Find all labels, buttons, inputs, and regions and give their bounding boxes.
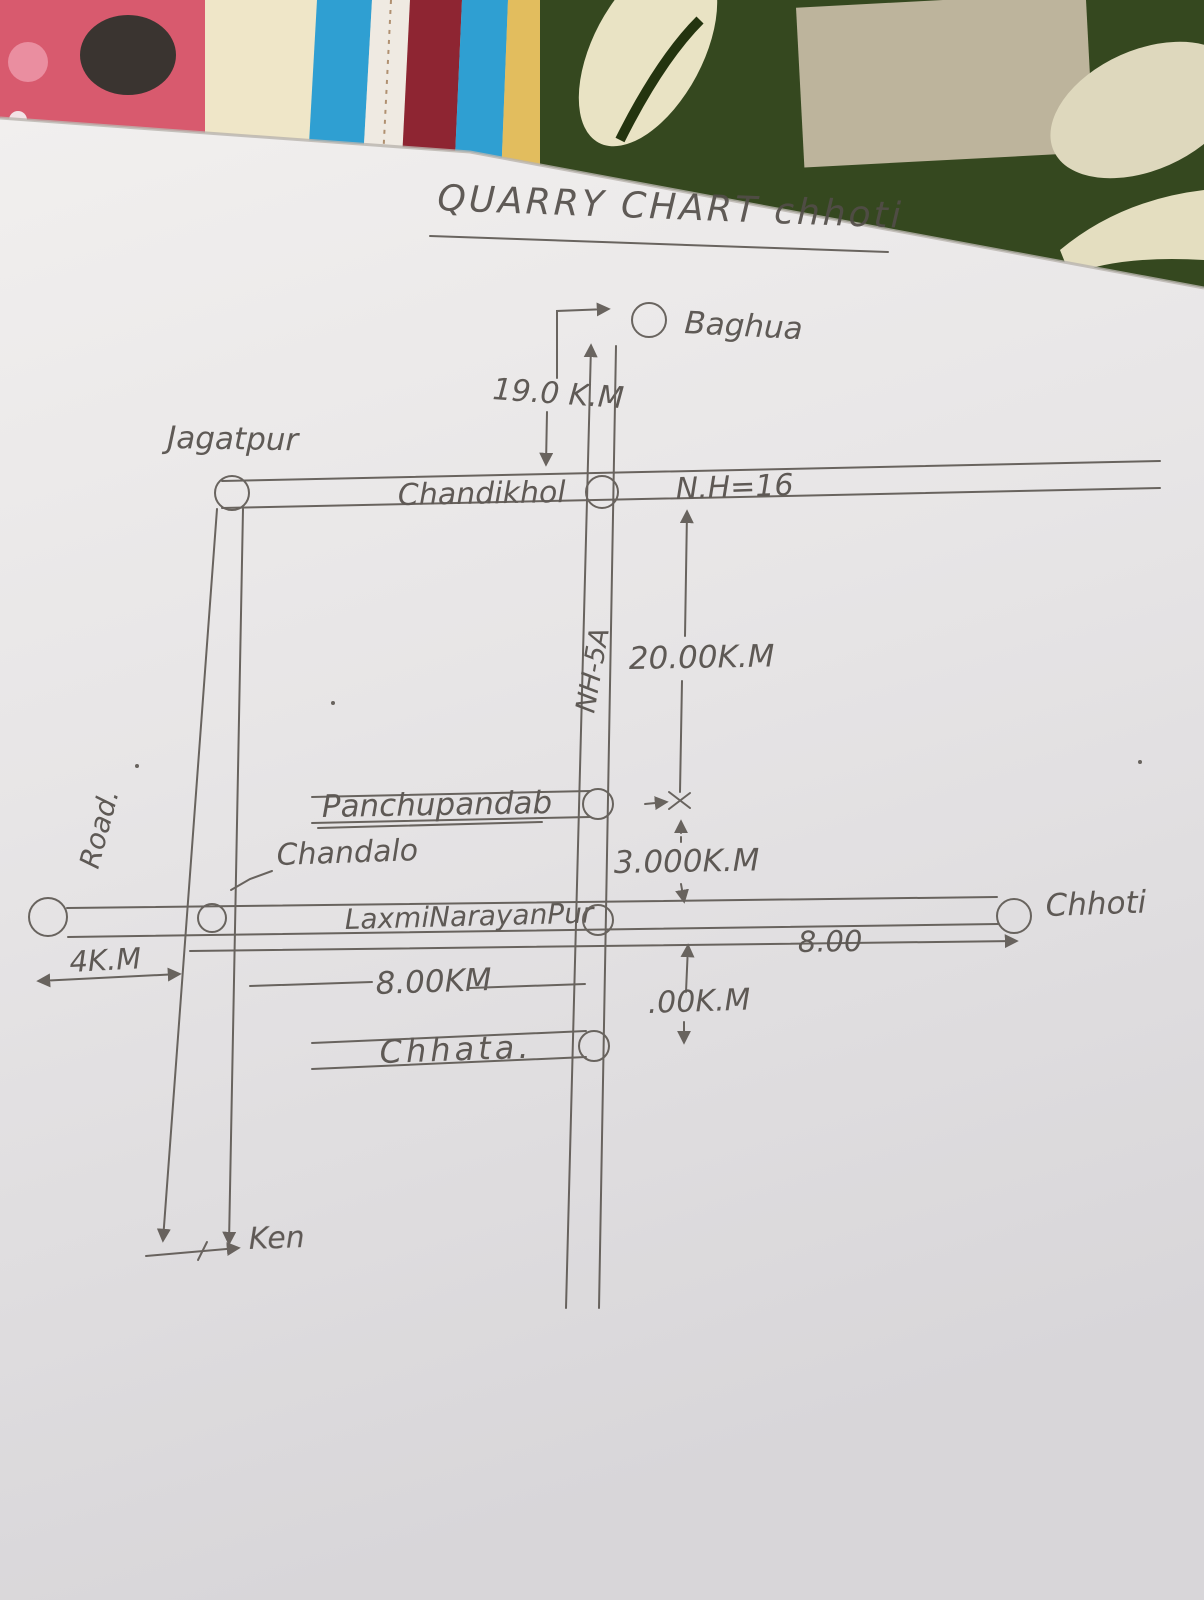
label-panchupandab: Panchupandab [322, 785, 553, 825]
distance-4km: 4K.M [69, 941, 142, 979]
fabric-tan-patch [796, 0, 1094, 167]
shadow-fold [80, 15, 176, 95]
quarry-chart-drawing: QUARRY CHART chhoti Baghua 19.0 K.M NH-5… [0, 0, 1204, 1600]
distance-8km: 8.00KM [375, 962, 492, 1002]
label-chhata: Chhata. [379, 1028, 533, 1071]
label-nh16: N.H=16 [675, 468, 794, 507]
label-chandalo: Chandalo [276, 833, 419, 873]
label-laxminarayanpur: LaxmiNarayanPur [344, 896, 595, 936]
label-baghua: Baghua [684, 305, 804, 347]
paper-sheet [0, 118, 1204, 1600]
label-chandikhol: Chandikhol [398, 475, 567, 513]
floral-spot [8, 42, 48, 82]
pencil-speck [1138, 760, 1142, 764]
label-chhoti: Chhoti [1045, 884, 1147, 924]
distance-8-east: 8.00 [798, 924, 863, 959]
label-ken: Ken [248, 1220, 305, 1257]
pencil-speck [331, 701, 335, 705]
arrow-19km-down [546, 412, 547, 464]
distance-20km: 20.00K.M [629, 638, 775, 677]
distance-3km: 3.000K.M [614, 842, 760, 881]
label-jagatpur: Jagatpur [161, 420, 301, 458]
pencil-speck [135, 764, 139, 768]
photo-of-hand-drawn-quarry-chart: QUARRY CHART chhoti Baghua 19.0 K.M NH-5… [0, 0, 1204, 1600]
distance-00km: .00K.M [647, 982, 751, 1021]
